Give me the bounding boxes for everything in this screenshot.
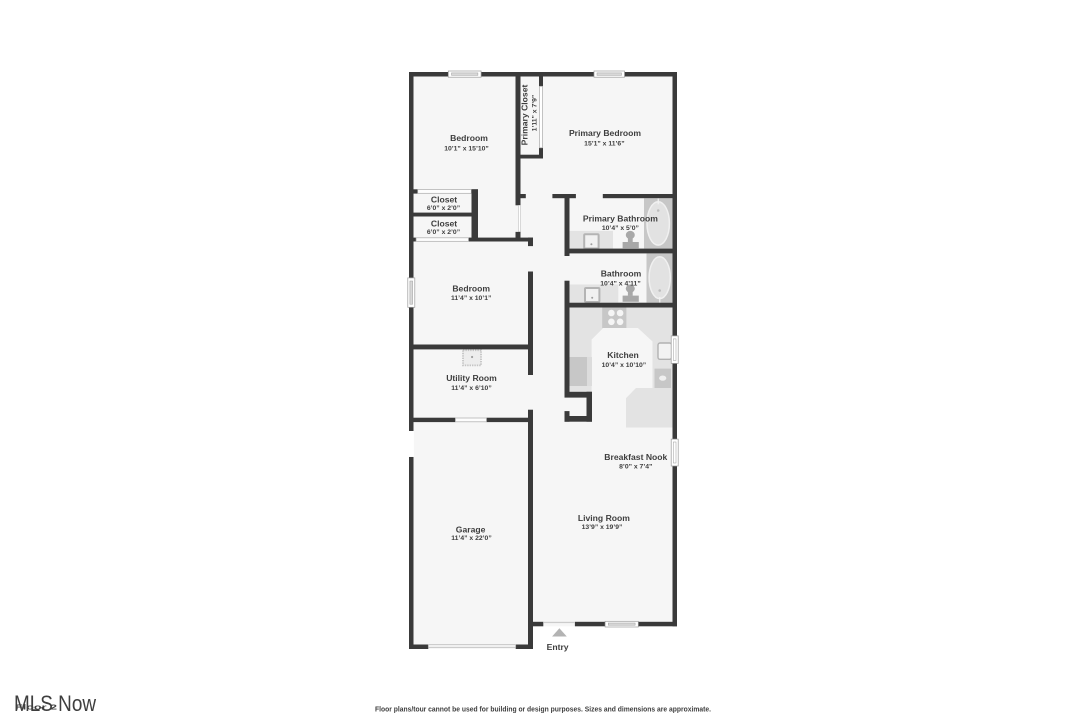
svg-text:Breakfast Nook: Breakfast Nook (604, 452, 667, 462)
svg-text:8’0” x 7’4”: 8’0” x 7’4” (619, 464, 652, 471)
svg-text:1’11” x 7’9”: 1’11” x 7’9” (532, 95, 539, 132)
svg-text:11’4” x 10’1”: 11’4” x 10’1” (451, 295, 491, 302)
svg-text:Bedroom: Bedroom (452, 284, 490, 294)
svg-text:Bathroom: Bathroom (601, 269, 642, 279)
svg-text:10’4” x 5’0”: 10’4” x 5’0” (602, 225, 639, 232)
svg-text:10’4” x 4’11”: 10’4” x 4’11” (600, 280, 640, 287)
svg-text:Garage: Garage (456, 525, 486, 535)
svg-text:Floor plans/tour cannot be use: Floor plans/tour cannot be used for buil… (375, 705, 711, 714)
svg-text:6’0” x 2’0”: 6’0” x 2’0” (427, 229, 460, 236)
svg-text:11’4” x 6’10”: 11’4” x 6’10” (451, 385, 491, 392)
svg-text:Primary Bedroom: Primary Bedroom (569, 128, 641, 138)
svg-text:13’9” x 19’9”: 13’9” x 19’9” (582, 524, 623, 531)
svg-text:Entry: Entry (547, 642, 569, 652)
svg-text:Closet: Closet (431, 219, 457, 229)
svg-text:Floor 2: Floor 2 (15, 705, 57, 712)
svg-text:Bedroom: Bedroom (450, 133, 488, 143)
svg-text:6’0” x 2’0”: 6’0” x 2’0” (427, 205, 460, 212)
svg-text:11’4” x 22’0”: 11’4” x 22’0” (451, 535, 491, 542)
svg-text:Kitchen: Kitchen (607, 350, 639, 360)
svg-text:Living Room: Living Room (578, 513, 630, 523)
svg-text:Primary Closet: Primary Closet (520, 85, 530, 146)
svg-text:Primary Bathroom: Primary Bathroom (583, 213, 658, 223)
svg-text:15’1” x 11’6”: 15’1” x 11’6” (584, 140, 624, 147)
svg-text:10’4” x 10’10”: 10’4” x 10’10” (602, 362, 647, 369)
svg-text:MLS Now: MLS Now (14, 691, 96, 716)
svg-text:Closet: Closet (431, 194, 457, 204)
svg-text:10’1” x 15’10”: 10’1” x 15’10” (444, 146, 489, 153)
svg-text:Utility Room: Utility Room (446, 373, 497, 383)
